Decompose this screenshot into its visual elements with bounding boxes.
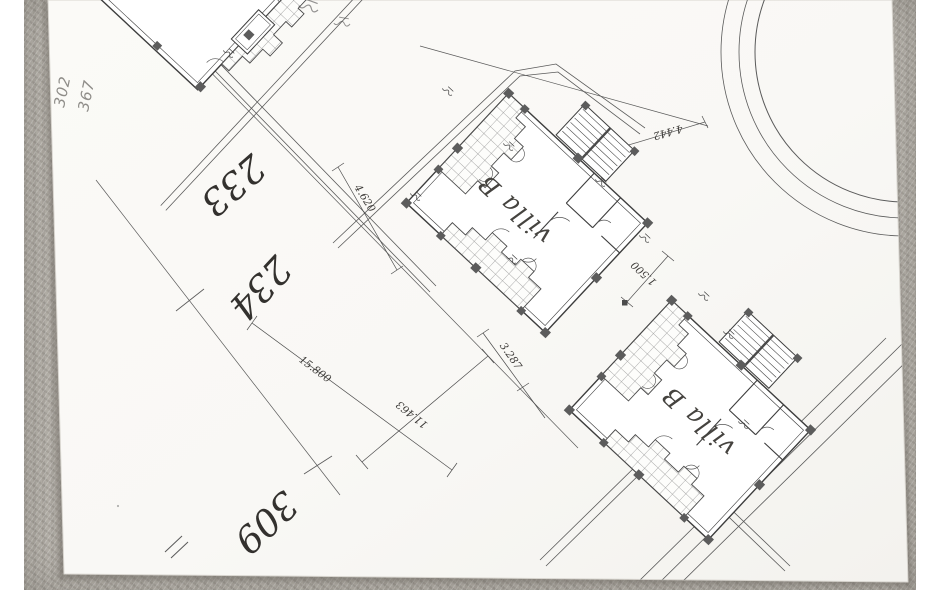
site-plan-drawing: 233 234 309 4.620 15.800 11.463 3.287 1.… (0, 0, 940, 590)
paper-sheet (48, 0, 908, 582)
photo-of-site-plan: 233 234 309 4.620 15.800 11.463 3.287 1.… (0, 0, 940, 590)
